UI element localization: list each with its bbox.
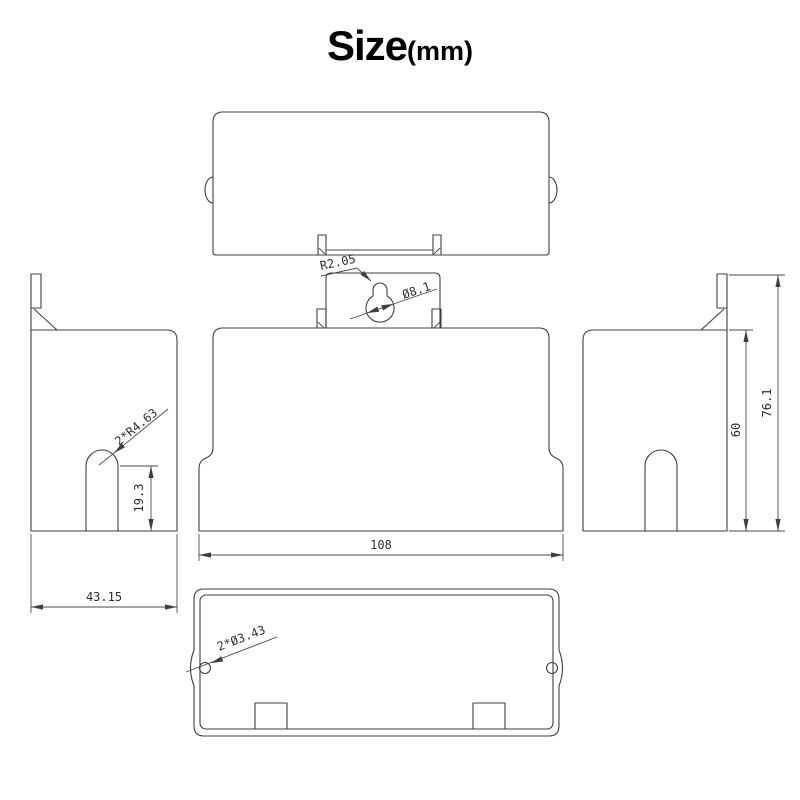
technical-drawing-page: Size(mm) R2.05 <box>0 0 800 800</box>
keyhole-slot-shape <box>366 283 394 322</box>
bottom-view-outer-outline <box>191 589 563 736</box>
front-view-outline <box>199 328 563 531</box>
right-view-tab-diagonal <box>701 309 724 330</box>
dimension-drawing: R2.05 Ø8.1 108 2*R4.63 <box>0 0 800 800</box>
left-side-view: 2*R4.63 19.3 43.15 <box>31 274 177 613</box>
right-view-top-tab <box>717 274 727 330</box>
dim-side-slot-height: 19.3 <box>132 484 146 513</box>
right-side-view: 60 76.1 <box>583 274 785 531</box>
left-view-body <box>31 330 177 531</box>
dim-front-body-width: 108 <box>370 538 392 552</box>
front-view: 108 <box>199 328 563 561</box>
left-view-tab-diagonal <box>34 309 57 330</box>
right-view-body <box>583 330 727 531</box>
top-view-left-bump <box>205 177 213 203</box>
top-view <box>205 112 557 255</box>
left-view-top-tab <box>31 274 41 330</box>
dim-side-body-width: 43.15 <box>86 590 122 604</box>
dim-keyhole-hole-diameter: Ø8.1 <box>400 279 432 302</box>
bottom-view: 2*Ø3.43 <box>186 589 563 736</box>
top-view-outline <box>213 112 549 255</box>
keyhole-plate-detail: R2.05 Ø8.1 <box>317 252 441 329</box>
dim-body-height: 60 <box>729 423 743 437</box>
dim-overall-height: 76.1 <box>760 389 774 418</box>
top-view-right-bump <box>549 177 557 203</box>
